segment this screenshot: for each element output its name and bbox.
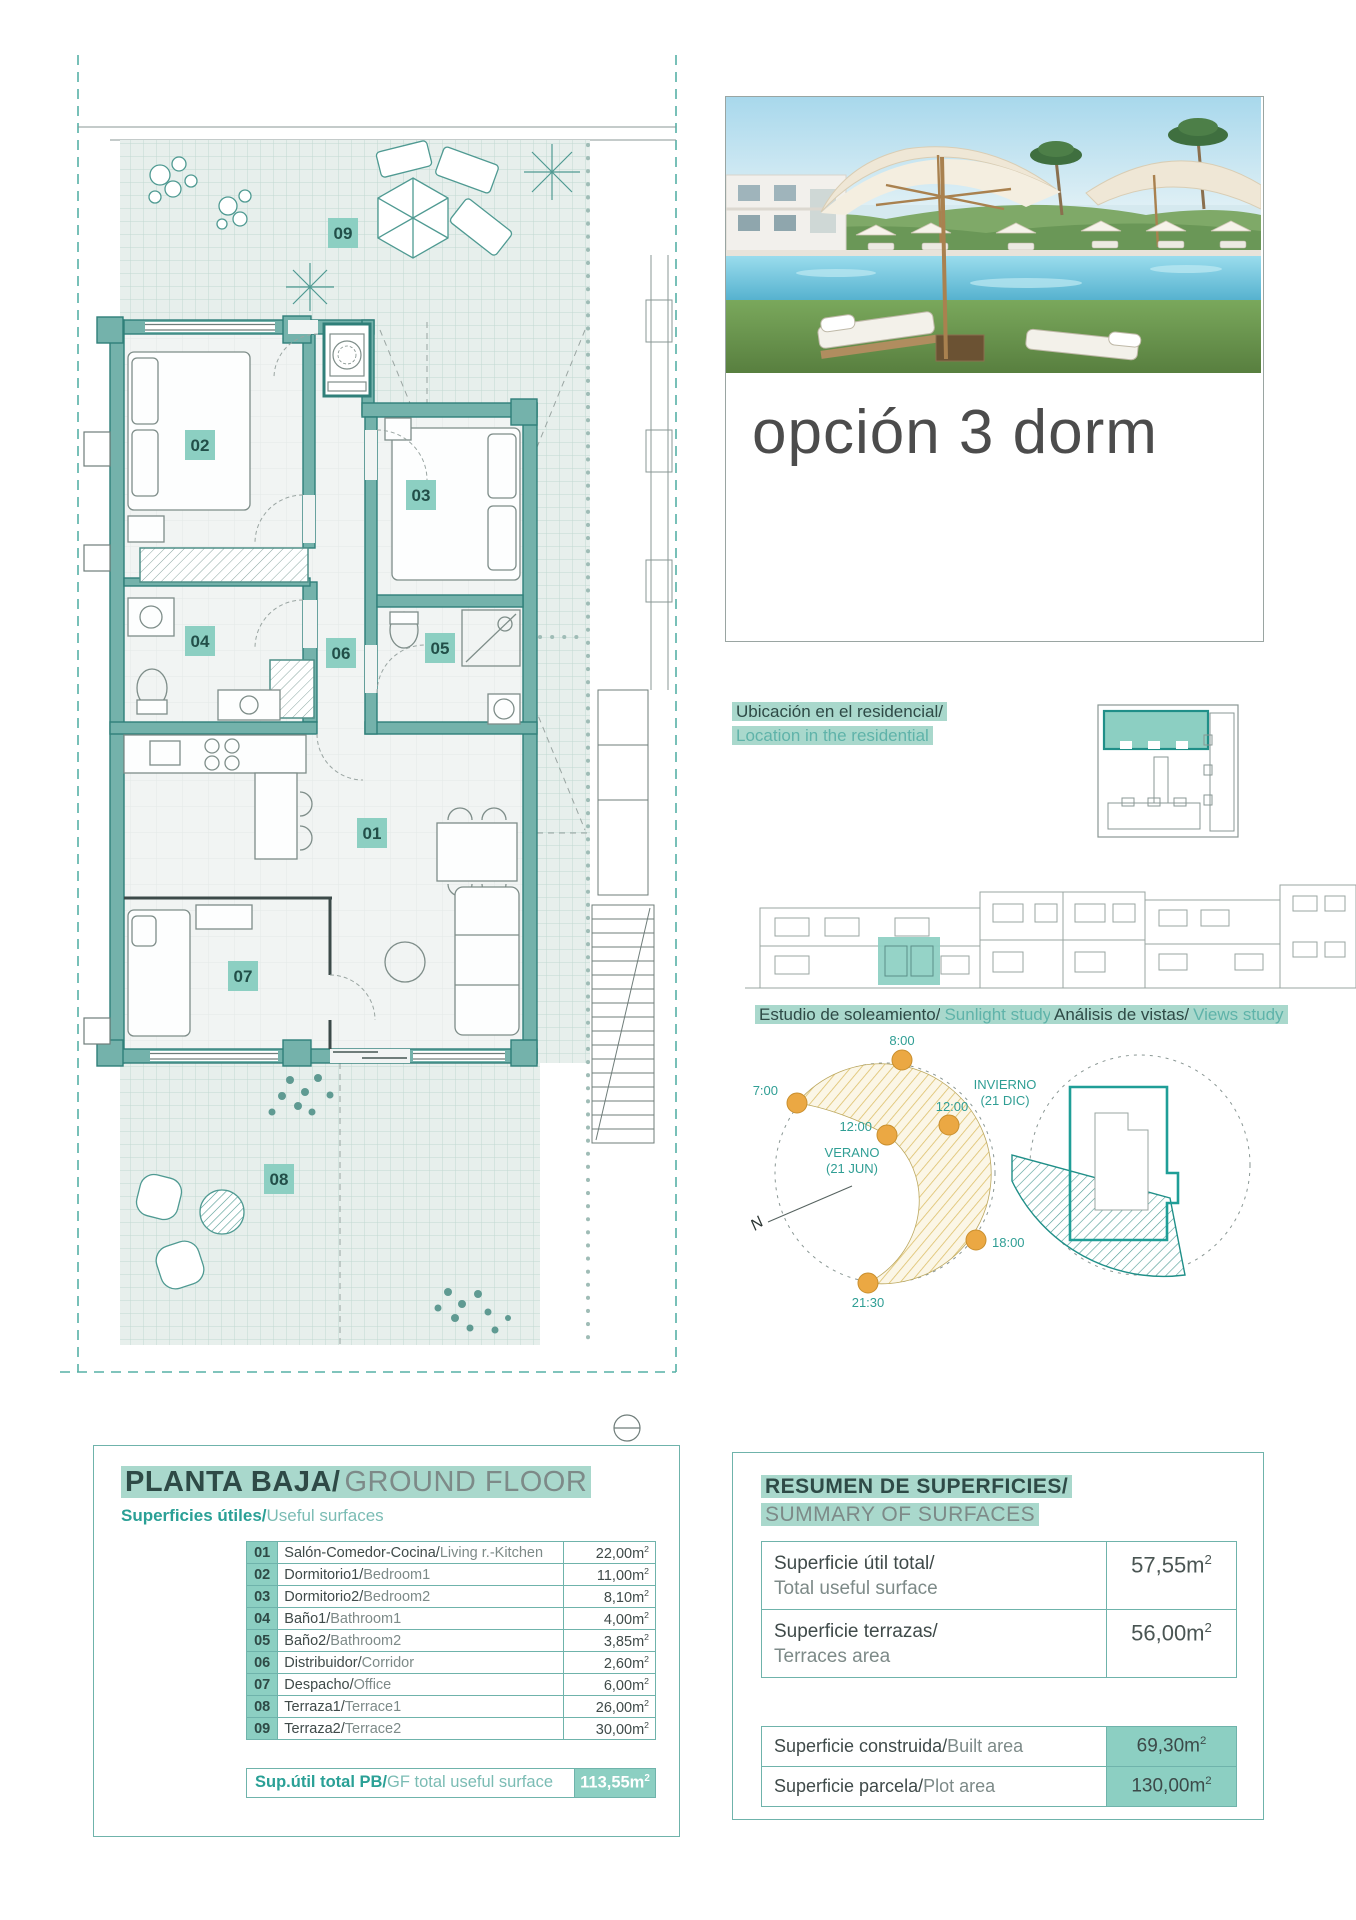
hero-photo-box: opción 3 dorm [725, 96, 1264, 642]
svg-text:12:00: 12:00 [839, 1119, 872, 1134]
summary-of-surfaces-panel: RESUMEN DE SUPERFICIES/ SUMMARY OF SURFA… [732, 1452, 1264, 1820]
floor-plan-drawing: 09 02 03 04 05 06 01 07 08 [55, 40, 705, 1460]
north-arrow: N [748, 1213, 768, 1234]
svg-text:09: 09 [334, 224, 353, 243]
summary-heading: RESUMEN DE SUPERFICIES/ SUMMARY OF SURFA… [761, 1473, 1072, 1529]
table-row: 04Baño1/Bathroom14,00m2 [247, 1608, 656, 1630]
useful-surfaces-subheading: Superficies útiles/Useful surfaces [121, 1506, 384, 1526]
table-row: Superficie útil total/Total useful surfa… [762, 1542, 1237, 1610]
table-row: Superficie terrazas/Terraces area 56,00m… [762, 1610, 1237, 1678]
sunlight-study-label: Estudio de soleamiento/Sunlight study [755, 1005, 1055, 1025]
summary-table: Superficie útil total/Total useful surfa… [761, 1541, 1237, 1678]
table-row: 06Distribuidor/Corridor2,60m2 [247, 1652, 656, 1674]
neighbour-stair [592, 690, 654, 1143]
section-mark-icon [614, 1415, 640, 1441]
ground-floor-heading: PLANTA BAJA/GROUND FLOOR [121, 1466, 591, 1499]
table-row: Superficie construida/Built area 69,30m2 [762, 1727, 1237, 1767]
residential-site-plan [1090, 695, 1250, 845]
east-strip-tiles [537, 410, 590, 1063]
terrace-08-floor [120, 1063, 540, 1345]
views-study-diagram [1010, 1035, 1356, 1335]
svg-text:05: 05 [431, 639, 450, 658]
table-row: 05Baño2/Bathroom23,85m2 [247, 1630, 656, 1652]
svg-text:01: 01 [363, 824, 382, 843]
svg-text:07: 07 [234, 967, 253, 986]
svg-text:7:00: 7:00 [753, 1083, 778, 1098]
table-row: Superficie parcela/Plot area 130,00m2 [762, 1767, 1237, 1807]
ground-floor-panel: PLANTA BAJA/GROUND FLOOR Superficies úti… [93, 1445, 680, 1837]
svg-text:12:00: 12:00 [936, 1099, 969, 1114]
neighbour-structure [646, 255, 672, 690]
room-areas-table: 01Salón-Comedor-Cocina/Living r.-Kitchen… [246, 1541, 656, 1740]
wardrobe-bedroom1 [140, 548, 308, 582]
svg-text:02: 02 [191, 436, 210, 455]
table-row: 03Dormitorio2/Bedroom28,10m2 [247, 1586, 656, 1608]
ground-floor-total-row: Sup.útil total PB/GF total useful surfac… [246, 1768, 656, 1798]
location-label-en: Location in the residential [732, 726, 933, 745]
table-row: 01Salón-Comedor-Cocina/Living r.-Kitchen… [247, 1542, 656, 1564]
brochure-page: 09 02 03 04 05 06 01 07 08 [0, 0, 1356, 1920]
total-useful-surface-value: 113,55m2 [575, 1768, 656, 1798]
location-label-es: Ubicación en el residencial/ [732, 702, 947, 721]
building-outline [1095, 1113, 1148, 1210]
laundry-closet [324, 324, 370, 396]
svg-text:08: 08 [270, 1170, 289, 1189]
table-row: 09Terraza2/Terrace230,00m2 [247, 1718, 656, 1740]
sunlight-study-diagram: N 8:00 7:00 12:00 12:00 18:00 21:30 VERA… [700, 1035, 1060, 1335]
svg-text:VERANO: VERANO [825, 1145, 880, 1160]
svg-text:8:00: 8:00 [889, 1035, 914, 1048]
svg-text:06: 06 [332, 644, 351, 663]
site-top-lines [78, 127, 676, 140]
page-title: opción 3 dorm [752, 397, 1158, 468]
svg-text:04: 04 [191, 632, 210, 651]
svg-text:(21 JUN): (21 JUN) [826, 1161, 878, 1176]
views-study-label: Análisis de vistas/Views study [1050, 1005, 1288, 1025]
table-row: 08Terraza1/Terrace126,00m2 [247, 1696, 656, 1718]
svg-text:03: 03 [412, 486, 431, 505]
svg-text:21:30: 21:30 [852, 1295, 885, 1310]
built-plot-table: Superficie construida/Built area 69,30m2… [761, 1726, 1237, 1807]
table-row: 07Despacho/Office6,00m2 [247, 1674, 656, 1696]
table-row: 02Dormitorio1/Bedroom111,00m2 [247, 1564, 656, 1586]
location-label: Ubicación en el residencial/ Location in… [732, 700, 947, 748]
highlighted-unit-elevation [878, 937, 940, 985]
street-elevation-drawing [745, 880, 1356, 1015]
pool-render-photo [726, 97, 1261, 373]
facade-utility-boxes [84, 432, 110, 1044]
terrace-09-east [372, 320, 590, 410]
